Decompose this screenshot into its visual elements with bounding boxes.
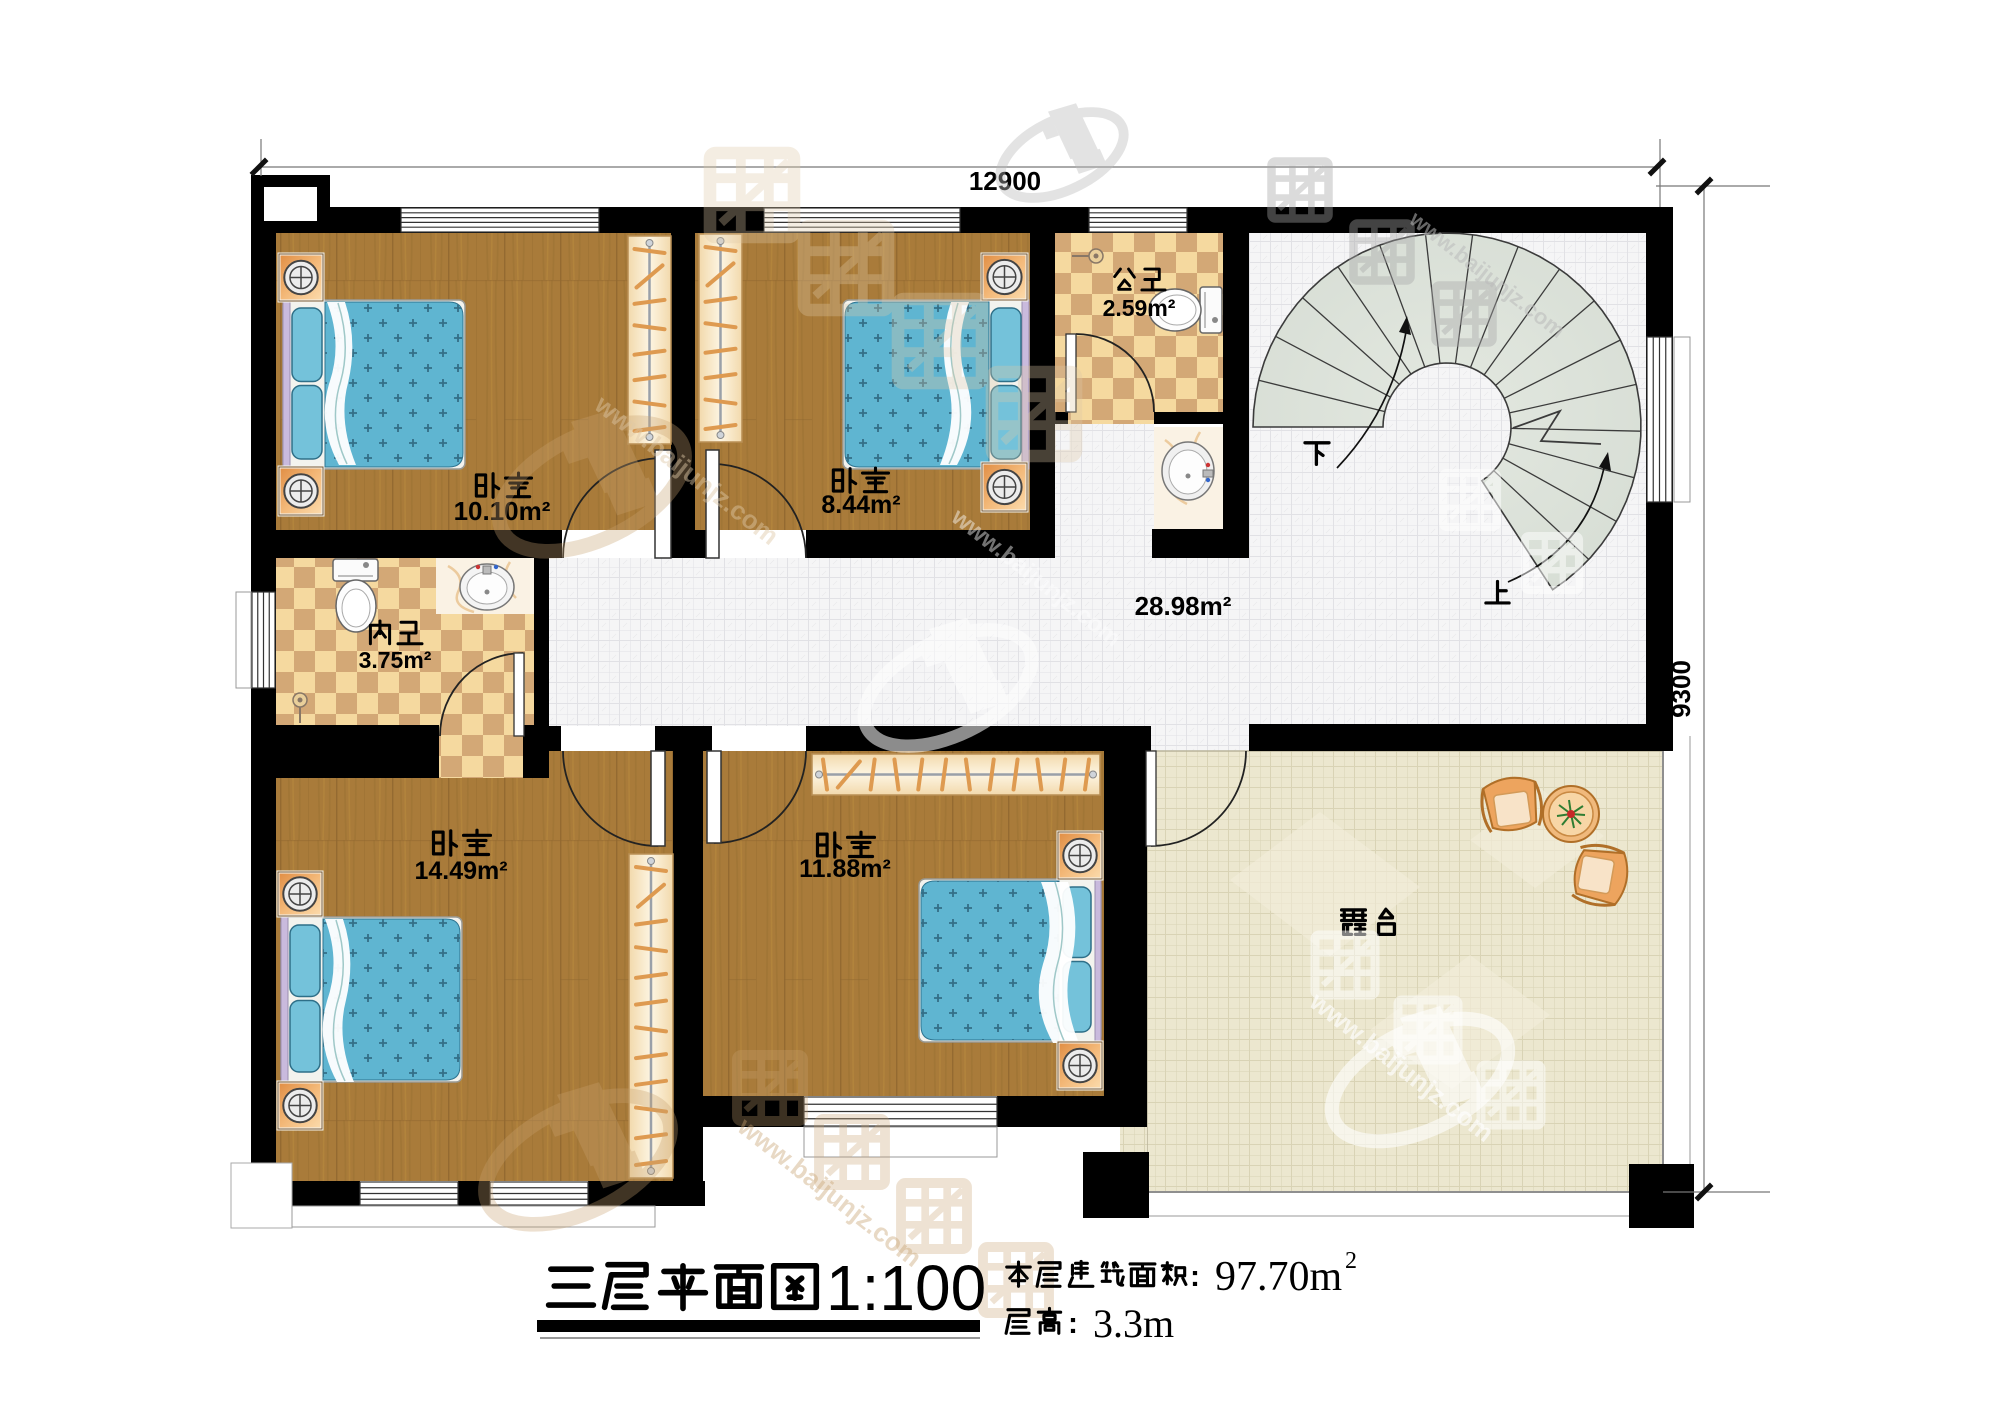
svg-text:3.75m²: 3.75m² [359,647,432,673]
svg-text::: : [1068,1307,1078,1340]
svg-text:9300: 9300 [1666,660,1696,718]
svg-text:2.59m²: 2.59m² [1103,295,1176,321]
svg-text:1:100: 1:100 [826,1252,986,1324]
svg-text:11.88m²: 11.88m² [799,855,891,883]
svg-text::: : [1190,1260,1200,1293]
svg-text:3.3m: 3.3m [1093,1301,1174,1346]
svg-text:28.98m²: 28.98m² [1135,591,1232,621]
svg-text:2: 2 [1345,1248,1357,1274]
svg-text:8.44m²: 8.44m² [821,491,900,519]
svg-text:14.49m²: 14.49m² [414,857,507,885]
svg-text:97.70m: 97.70m [1215,1254,1343,1300]
